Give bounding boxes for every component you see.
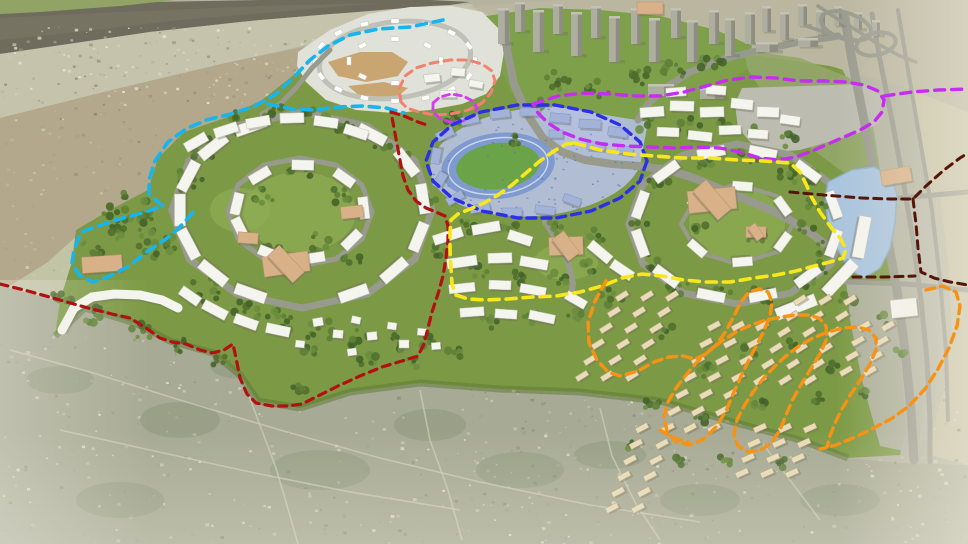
urban-masterplan-rendering — [0, 0, 968, 544]
haze-overlay-left — [0, 280, 150, 544]
masterplan-scene — [0, 0, 968, 544]
